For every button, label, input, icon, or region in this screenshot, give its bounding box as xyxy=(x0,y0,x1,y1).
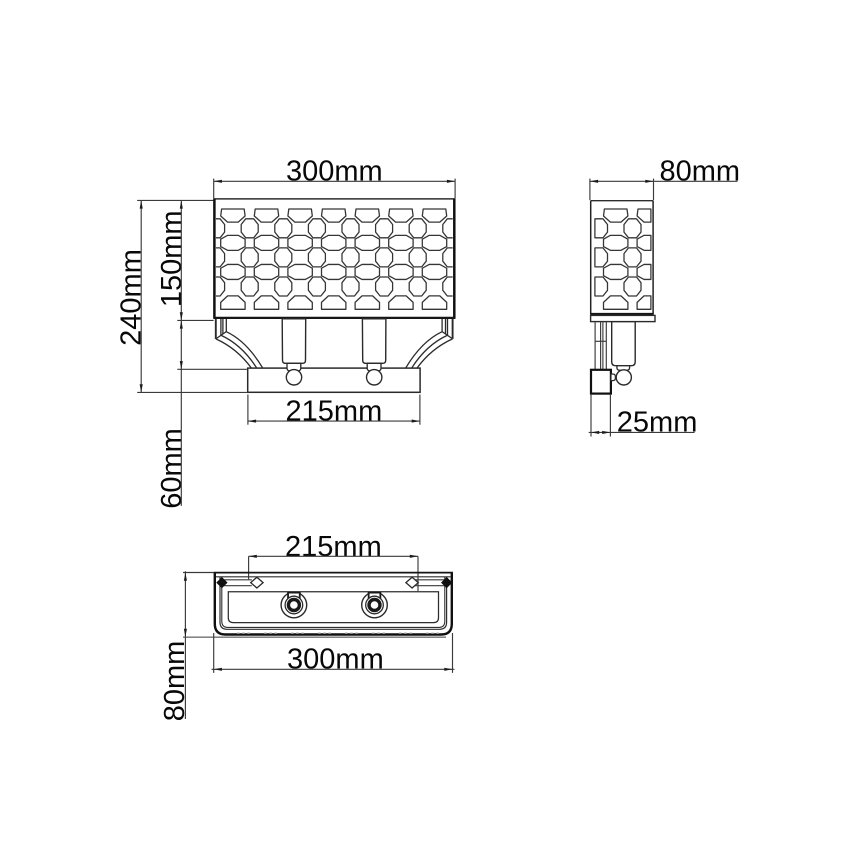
svg-text:80mm: 80mm xyxy=(660,156,741,188)
svg-text:240mm: 240mm xyxy=(116,249,148,346)
svg-text:25mm: 25mm xyxy=(617,407,698,439)
svg-text:60mm: 60mm xyxy=(156,428,188,509)
svg-text:300mm: 300mm xyxy=(286,156,383,188)
svg-text:80mm: 80mm xyxy=(159,641,191,722)
svg-text:150mm: 150mm xyxy=(156,210,188,307)
svg-text:215mm: 215mm xyxy=(286,396,383,428)
svg-text:300mm: 300mm xyxy=(287,644,384,676)
svg-text:215mm: 215mm xyxy=(285,531,382,563)
